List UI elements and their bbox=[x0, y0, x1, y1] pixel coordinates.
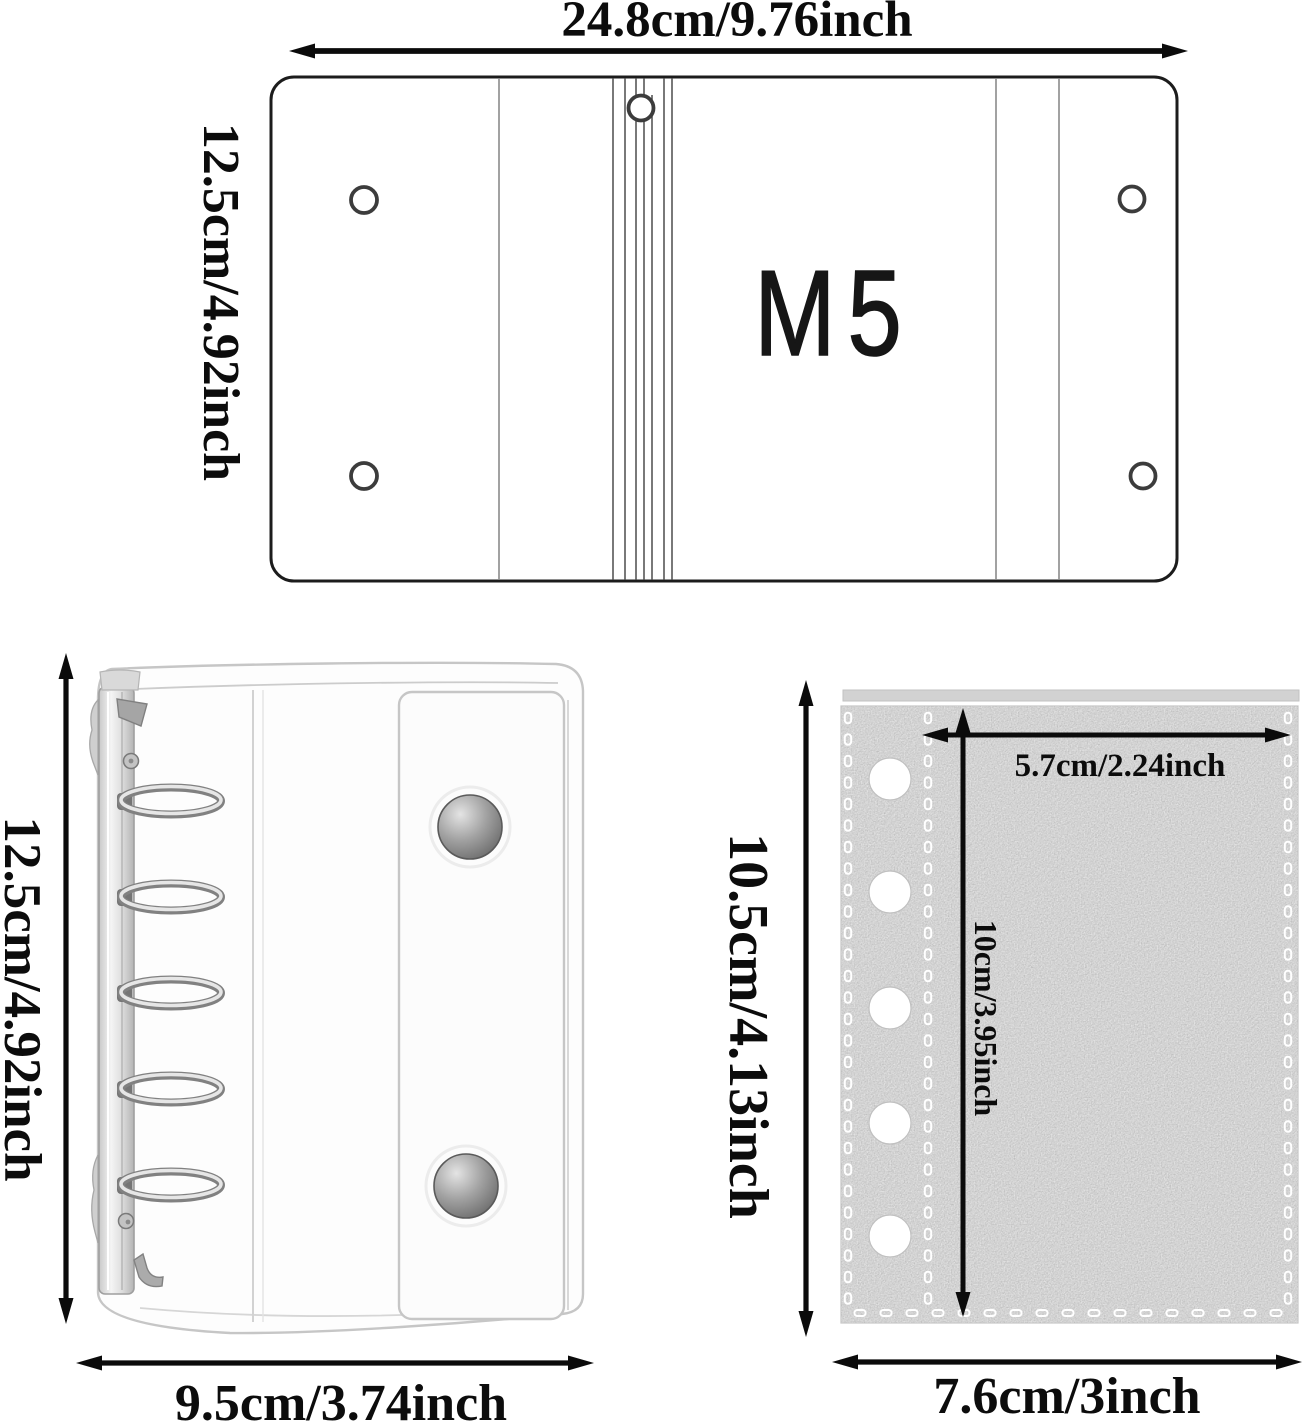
svg-text:24.8cm/9.76inch: 24.8cm/9.76inch bbox=[561, 0, 912, 48]
svg-text:10.5cm/4.13inch: 10.5cm/4.13inch bbox=[717, 833, 779, 1219]
svg-text:7.6cm/3inch: 7.6cm/3inch bbox=[933, 1368, 1200, 1425]
svg-text:12.5cm/4.92inch: 12.5cm/4.92inch bbox=[0, 816, 51, 1181]
svg-text:9.5cm/3.74inch: 9.5cm/3.74inch bbox=[175, 1375, 507, 1425]
svg-text:12.5cm/4.92inch: 12.5cm/4.92inch bbox=[192, 123, 249, 481]
svg-text:10cm/3.95inch: 10cm/3.95inch bbox=[968, 920, 1004, 1117]
svg-text:M5: M5 bbox=[754, 246, 914, 382]
svg-text:5.7cm/2.24inch: 5.7cm/2.24inch bbox=[1015, 748, 1226, 784]
